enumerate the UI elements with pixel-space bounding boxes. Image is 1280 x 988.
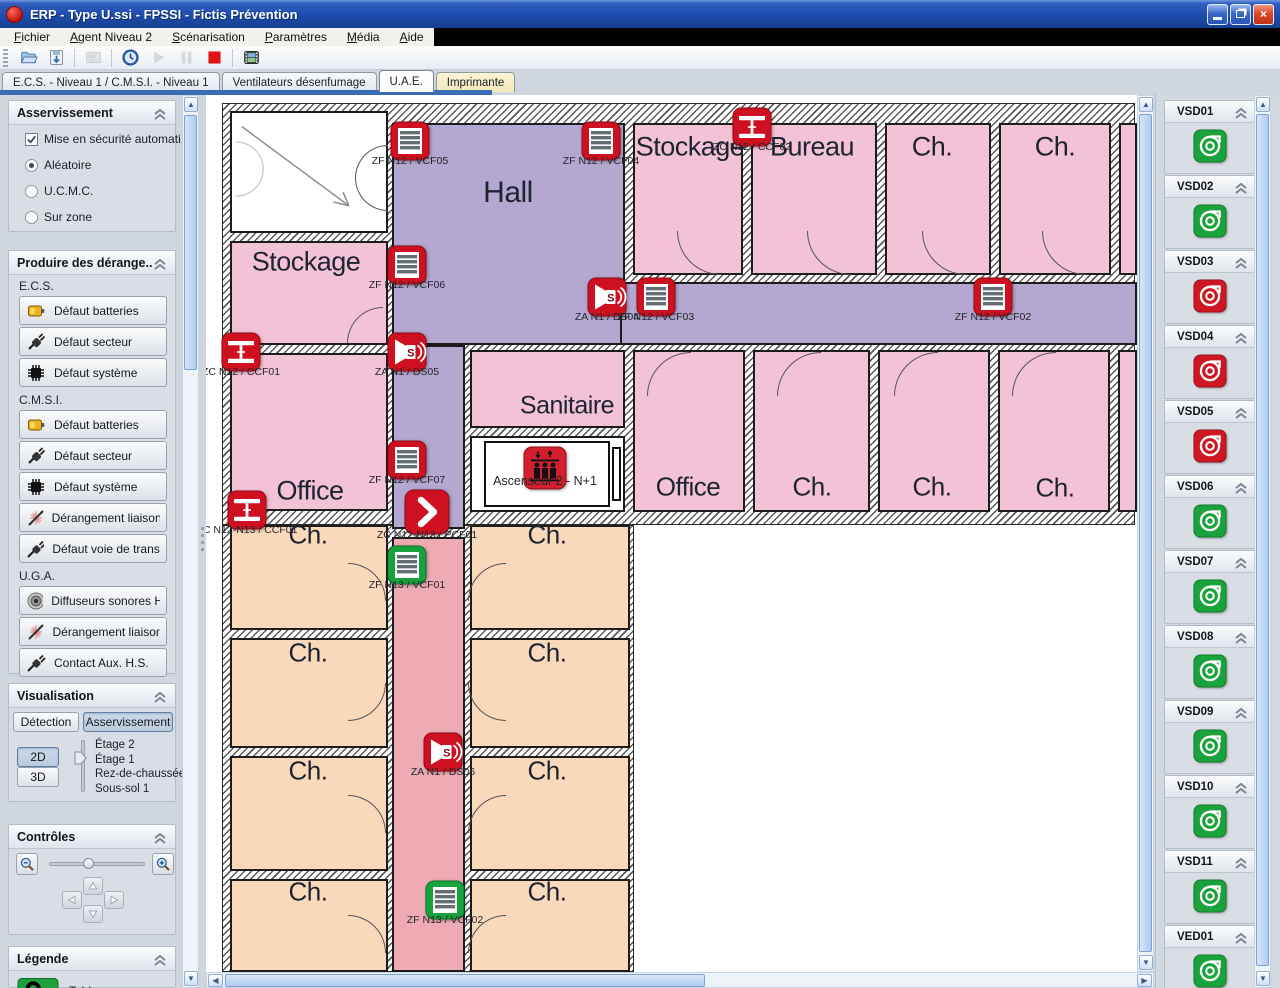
ventilator-group-header[interactable]: VSD08 [1165,626,1254,648]
ventilator-group-header[interactable]: VSD01 [1165,101,1254,123]
plan-vscrollbar-thumb[interactable] [1139,114,1152,952]
ventilator-group-header[interactable]: VSD05 [1165,401,1254,423]
radio-label: Aléatoire [44,158,91,172]
floor-plan-canvas: HallStockageStockageBureauCh.Ch.Sanitair… [222,95,1137,972]
device-label: ZC N12-N13 / PCF01 [357,529,497,541]
ventilator-group-title: VSD08 [1177,631,1234,643]
floor-label--tage-2[interactable]: Étage 2 [95,739,135,751]
menu-item-fichier[interactable]: Fichier [4,28,60,46]
title-bar: ERP - Type U.ssi - FPSSI - Fictis Préven… [0,0,1280,28]
fan-status-icon-green[interactable] [1193,654,1227,693]
ventilator-group-header[interactable]: VSD09 [1165,701,1254,723]
fault-button-d-faut-voie-de-trans-[interactable]: Défaut voie de trans... [19,534,167,563]
fault-button-label: Dérangement liaison ... [52,511,160,525]
fan-status-icon-green[interactable] [1193,579,1227,618]
floor-slider-handle[interactable] [73,750,87,766]
pan-up-button[interactable] [83,877,103,895]
plug-icon [26,332,46,352]
svg-text:S: S [443,748,450,760]
sidebar-scrollbar[interactable]: ▲ ▼ [182,95,199,988]
device-vcf-icon[interactable]: ZF N12 / VCF06 [387,245,427,285]
ventilator-group-body [1165,798,1254,848]
collapse-chevron-icon[interactable] [1234,256,1248,268]
room-name-label: Stockage [252,247,361,278]
fault-button-label: Contact Aux. H.S. [54,656,149,670]
room-name-label: Ch. [528,520,567,551]
room-name-label: Ch. [528,877,567,908]
svg-text:S: S [607,293,614,305]
plan-horizontal-scrollbar[interactable]: ◀ ▶ [206,972,1154,988]
fan-status-icon-red[interactable] [1193,354,1227,393]
device-vcf-icon[interactable]: ZF N13 / VCF01 [387,545,427,585]
fault-button-d-rangement-liaisons[interactable]: Dérangement liaisons [19,617,167,646]
ventilator-group-ved01: VED01 [1164,925,1255,988]
room-name-label: Sanitaire [520,392,614,421]
collapse-chevron-icon[interactable] [1234,106,1248,118]
room-name-label: Ch. [1036,473,1075,504]
floor-plan-area: HallStockageStockageBureauCh.Ch.Sanitair… [206,95,1137,972]
ventilator-group-title: VSD06 [1177,481,1234,493]
collapse-chevron-icon[interactable] [153,690,167,702]
collapse-chevron-icon[interactable] [153,831,167,843]
right-panel-scrollbar[interactable]: ▲ ▼ [1254,95,1271,988]
menu-bar-filler [434,28,1280,46]
media-icon[interactable] [239,47,263,69]
toolbar [0,46,1280,70]
collapse-chevron-icon[interactable] [1234,706,1248,718]
device-label: ZA N1 / DS05 [337,366,477,378]
app-window: ERP - Type U.ssi - FPSSI - Fictis Préven… [0,0,1280,988]
ventilator-group-header[interactable]: VSD04 [1165,326,1254,348]
panel-title: Asservissement [17,106,153,120]
device-label: ZF N12 / VCF04 [531,155,671,167]
fault-button-label: Défaut système [54,480,137,494]
room-name-label: Ch. [912,132,953,163]
device-pcf-icon[interactable]: ZC N12-N13 / PCF01 [404,489,450,535]
speaker-icon [26,591,43,611]
radio-u-c-m-c-[interactable]: U.C.M.C. [25,184,93,198]
collapse-chevron-icon[interactable] [153,107,167,119]
ventilator-group-header[interactable]: VED01 [1165,926,1254,948]
scroll-down-icon[interactable]: ▼ [184,971,198,986]
fault-button-label: Diffuseurs sonores H.S. [51,594,160,608]
menu-item-agent-niveau-2[interactable]: Agent Niveau 2 [60,28,162,46]
view-button-2d[interactable]: 2D [17,747,59,767]
fault-button-contact-aux-h-s-[interactable]: Contact Aux. H.S. [19,648,167,677]
zoom-slider-track[interactable] [49,862,145,866]
fault-button-label: Défaut secteur [54,335,132,349]
fault-button-d-faut-secteur[interactable]: Défaut secteur [19,327,167,356]
ventilator-group-title: VSD05 [1177,406,1234,418]
device-label: ZF N12 / VCF03 [586,311,726,323]
ventilator-group-title: VSD09 [1177,706,1234,718]
device-label: ZF N12 / VCF02 [923,311,1063,323]
fan-status-icon-green[interactable] [1193,879,1227,918]
collapse-chevron-icon[interactable] [1234,931,1248,943]
panel-icon [81,47,105,69]
panel-title: Contrôles [17,830,153,844]
menu-item-sc-narisation[interactable]: Scénarisation [162,28,255,46]
legend-item-tableau: Tableau [17,977,111,988]
device-vcf-icon[interactable]: ZF N12 / VCF07 [387,440,427,480]
device-asc-icon[interactable]: Ascenseur 2 - N+1 [523,446,567,490]
device-ccf-icon[interactable]: ZC N12 / CCF02 [732,107,772,147]
panel-controles-header[interactable]: Contrôles [9,825,175,849]
ventilator-group-body [1165,498,1254,548]
ventilator-group-header[interactable]: VSD06 [1165,476,1254,498]
group-label-ecs: E.C.S. [19,279,54,293]
fault-button-label: Défaut batteries [54,418,139,432]
collapse-chevron-icon[interactable] [153,257,167,269]
ventilator-group-body [1165,123,1254,173]
ventilator-group-header[interactable]: VSD03 [1165,251,1254,273]
fault-button-label: Défaut batteries [54,304,139,318]
collapse-chevron-icon[interactable] [1234,556,1248,568]
radio-icon[interactable] [25,159,38,172]
pan-down-button[interactable] [83,905,103,923]
toolbar-grip[interactable] [3,49,8,67]
panel-legende-header[interactable]: Légende [9,947,175,971]
clock-icon[interactable] [118,47,142,69]
panel-legende: Légende Tableau [8,946,176,988]
plan-vertical-scrollbar[interactable]: ▲ ▼ [1137,95,1154,972]
fault-button-d-faut-syst-me[interactable]: Défaut système [19,472,167,501]
tab-imprimante[interactable]: Imprimante [436,72,516,92]
fan-status-icon-red[interactable] [1193,279,1227,318]
ventilator-group-body [1165,948,1254,988]
ventilator-group-title: VSD10 [1177,781,1234,793]
pause-icon [174,47,198,69]
ventilator-group-header[interactable]: VSD07 [1165,551,1254,573]
zoom-out-button[interactable] [16,853,38,875]
device-vcf-icon[interactable]: ZF N13 / VCF02 [425,880,465,920]
collapse-chevron-icon[interactable] [1234,331,1248,343]
tab-e-c-s-niveau-1-c-m-s-i-niveau-1[interactable]: E.C.S. - Niveau 1 / C.M.S.I. - Niveau 1 [2,72,220,92]
minimize-button[interactable] [1207,4,1228,25]
ventilator-group-body [1165,273,1254,323]
restore-button[interactable] [1230,4,1251,25]
right-panel-scrollbar-thumb[interactable] [1256,114,1269,966]
menu-item-param-tres[interactable]: Paramètres [255,28,337,46]
fan-status-icon-green[interactable] [1193,129,1227,168]
fan-status-icon-green[interactable] [1193,729,1227,768]
collapse-chevron-icon[interactable] [1234,181,1248,193]
room-name-label: Ch. [528,756,567,787]
fault-button-diffuseurs-sonores-h-s-[interactable]: Diffuseurs sonores H.S. [19,586,167,615]
collapse-chevron-icon[interactable] [1234,781,1248,793]
scroll-up-icon[interactable]: ▲ [184,97,198,112]
panel-visualisation-header[interactable]: Visualisation [9,684,175,708]
device-label: ZF N12 / VCF06 [337,279,477,291]
ventilator-group-body [1165,348,1254,398]
view-button-3d[interactable]: 3D [17,767,59,787]
tableau-icon [17,977,59,988]
scroll-right-icon[interactable]: ▶ [1137,974,1152,987]
ventilator-group-vsd09: VSD09 [1164,700,1255,774]
open-project-icon[interactable] [16,47,40,69]
fault-button-label: Défaut secteur [54,449,132,463]
fan-status-icon-green[interactable] [1193,204,1227,243]
room-room-mid-partial [1118,350,1137,512]
mode-button-asservissement[interactable]: Asservissement [83,712,173,732]
fault-button-d-faut-secteur[interactable]: Défaut secteur [19,441,167,470]
device-label: Ascenseur 2 - N+1 [475,474,615,488]
panel-visualisation: Visualisation DétectionAsservissement2D3… [8,683,176,802]
save-icon[interactable] [44,47,68,69]
auto-safety-checkbox[interactable]: Mise en sécurité automati... [25,132,191,146]
device-ds-icon[interactable]: SZA N1 / DS06 [423,732,463,772]
collapse-chevron-icon[interactable] [1234,481,1248,493]
panel-title: Visualisation [17,689,153,703]
cable-icon [26,539,44,559]
device-vcf-icon[interactable]: ZF N12 / VCF04 [581,121,621,161]
ventilator-group-header[interactable]: VSD11 [1165,851,1254,873]
ventilator-group-vsd10: VSD10 [1164,775,1255,849]
ventilator-group-title: VED01 [1177,931,1234,943]
collapse-chevron-icon[interactable] [1234,631,1248,643]
ventilator-group-vsd01: VSD01 [1164,100,1255,174]
group-label-cmsi: C.M.S.I. [19,393,62,407]
ventilator-group-title: VSD07 [1177,556,1234,568]
panel-asservissement-header[interactable]: Asservissement [9,101,175,125]
ventilator-group-vsd11: VSD11 [1164,850,1255,924]
room-name-label: Ch. [528,638,567,669]
pan-left-button[interactable] [62,891,82,909]
device-label: ZC N12-N13 / CCF01 [206,524,317,536]
panel-title: Légende [17,952,153,966]
ventilator-group-vsd02: VSD02 [1164,175,1255,249]
panel-derangements-header[interactable]: Produire des dérange... [9,251,175,275]
window-title: ERP - Type U.ssi - FPSSI - Fictis Préven… [30,7,1207,22]
play-icon [146,47,170,69]
tab-ventilateurs-d-senfumage[interactable]: Ventilateurs désenfumage [222,72,377,92]
device-ccf-icon[interactable]: ZC N12-N13 / CCF01 [227,490,267,530]
room-name-label: Ch. [289,756,328,787]
checkbox-label: Mise en sécurité automati... [44,132,191,146]
device-ccf-icon[interactable]: ZC N12 / CCF01 [221,332,261,372]
ventilator-group-vsd04: VSD04 [1164,325,1255,399]
device-label: ZC N12 / CCF01 [206,366,311,378]
fan-status-icon-green[interactable] [1193,954,1227,988]
room-name-label: Ch. [289,877,328,908]
fault-button-d-rangement-liaison-[interactable]: Dérangement liaison ... [19,503,167,532]
ventilator-group-body [1165,648,1254,698]
scroll-left-icon[interactable]: ◀ [208,974,223,987]
device-label: ZA N1 / DS06 [373,766,513,778]
chip-icon [26,363,46,383]
room-name-label: Ch. [289,638,328,669]
room-name-label: Ch. [913,472,952,503]
tab-bar: E.C.S. - Niveau 1 / C.M.S.I. - Niveau 1V… [0,70,1280,92]
scroll-up-icon[interactable]: ▲ [1139,97,1153,112]
ventilator-group-vsd06: VSD06 [1164,475,1255,549]
scroll-up-icon[interactable]: ▲ [1256,97,1270,112]
device-label: ZF N12 / VCF05 [340,155,480,167]
fault-button-d-faut-syst-me[interactable]: Défaut système [19,358,167,387]
legend-item-label: Tableau [69,984,111,988]
radio-icon[interactable] [25,185,38,198]
radio-label: U.C.M.C. [44,184,93,198]
close-button[interactable]: × [1253,4,1274,25]
radio-al-atoire[interactable]: Aléatoire [25,158,91,172]
fault-button-d-faut-batteries[interactable]: Défaut batteries [19,410,167,439]
plan-hscrollbar-thumb[interactable] [225,974,705,987]
fault-button-label: Défaut système [54,366,137,380]
mode-button-d-tection[interactable]: Détection [13,712,79,732]
fault-button-label: Dérangement liaisons [53,625,160,639]
floor-label-sous-sol-1[interactable]: Sous-sol 1 [95,783,149,795]
device-label: ZC N12 / CCF02 [682,141,822,153]
panel-title: Produire des dérange... [17,256,153,270]
ventilator-group-body [1165,423,1254,473]
fault-button-label: Défaut voie de trans... [52,542,160,556]
device-label: ZF N13 / VCF01 [337,579,477,591]
fan-status-icon-red[interactable] [1193,429,1227,468]
tab-u-a-e-[interactable]: U.A.E. [379,70,434,92]
menu-bar: FichierAgent Niveau 2ScénarisationParamè… [0,28,1280,46]
collapse-chevron-icon[interactable] [1234,406,1248,418]
room-name-label: Hall [483,176,533,210]
battery-icon [26,301,46,321]
collapse-chevron-icon[interactable] [153,953,167,965]
broken-link-icon [26,508,44,528]
plug-icon [26,446,46,466]
ventilator-group-body [1165,198,1254,248]
menu-item-aide[interactable]: Aide [390,28,434,46]
toolbar-separator [232,49,233,67]
scroll-down-icon[interactable]: ▼ [1139,955,1153,970]
ventilator-group-title: VSD11 [1177,856,1234,868]
ventilator-group-header[interactable]: VSD10 [1165,776,1254,798]
svg-text:S: S [407,348,414,360]
ventilator-group-vsd07: VSD07 [1164,550,1255,624]
floor-label--tage-1[interactable]: Étage 1 [95,754,135,766]
panel-derangements: Produire des dérange... E.C.S.Défaut bat… [8,250,176,674]
ventilator-group-body [1165,873,1254,923]
checkbox-icon[interactable] [25,133,38,146]
stop-icon[interactable] [202,47,226,69]
room-name-label: Ch. [793,472,832,503]
panel-controles: Contrôles [8,824,176,935]
floor-label-rez-de-chauss-e[interactable]: Rez-de-chaussée [95,768,185,780]
fan-status-icon-green[interactable] [1193,804,1227,843]
chip-icon [26,477,46,497]
menu-item-m-dia[interactable]: Média [337,28,390,46]
pan-right-button[interactable] [104,891,124,909]
toolbar-separator [74,49,75,67]
panel-asservissement: Asservissement Mise en sécurité automati… [8,100,176,232]
device-vcf-icon[interactable]: ZF N12 / VCF05 [390,121,430,161]
fan-status-icon-green[interactable] [1193,504,1227,543]
device-label: ZF N13 / VCF02 [375,914,515,926]
ventilator-group-title: VSD03 [1177,256,1234,268]
ventilator-group-title: VSD01 [1177,106,1234,118]
room-room-ne-partial [1119,123,1137,275]
radio-icon[interactable] [25,211,38,224]
broken-link-icon [26,622,45,642]
scroll-down-icon[interactable]: ▼ [1256,971,1270,986]
ventilator-group-title: VSD04 [1177,331,1234,343]
zoom-slider-thumb[interactable] [83,858,94,869]
device-label: ZF N12 / VCF07 [337,474,477,486]
room-name-label: Office [276,476,343,507]
group-label-uga: U.G.A. [19,569,55,583]
room-name-label: Ch. [1035,132,1076,163]
collapse-chevron-icon[interactable] [1234,856,1248,868]
app-logo-icon [6,6,23,23]
ventilator-group-vsd05: VSD05 [1164,400,1255,474]
splitter-grip[interactable] [200,527,204,551]
device-ds-icon[interactable]: SZA N1 / DS05 [387,332,427,372]
ventilator-group-body [1165,573,1254,623]
device-vcf-icon[interactable]: ZF N12 / VCF02 [973,277,1013,317]
zoom-in-button[interactable] [152,853,174,875]
toolbar-separator [111,49,112,67]
device-vcf-icon[interactable]: ZF N12 / VCF03 [636,277,676,317]
fault-button-d-faut-batteries[interactable]: Défaut batteries [19,296,167,325]
cable-icon [26,653,46,673]
ventilator-group-title: VSD02 [1177,181,1234,193]
ventilator-group-body [1165,723,1254,773]
radio-label: Sur zone [44,210,92,224]
ventilator-group-vsd03: VSD03 [1164,250,1255,324]
ventilator-group-vsd08: VSD08 [1164,625,1255,699]
battery-icon [26,415,46,435]
sidebar-scrollbar-thumb[interactable] [184,115,197,370]
ventilator-group-header[interactable]: VSD02 [1165,176,1254,198]
radio-sur-zone[interactable]: Sur zone [25,210,92,224]
room-name-label: Office [656,472,720,503]
